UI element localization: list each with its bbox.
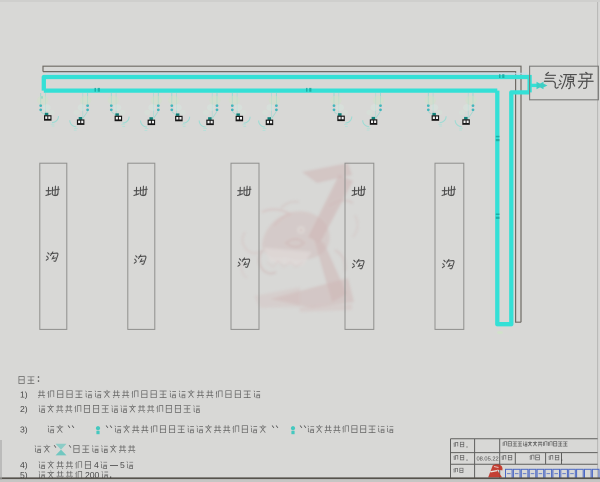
svg-text:5: 5: [120, 460, 125, 470]
svg-text:1): 1): [20, 389, 28, 399]
svg-text:4: 4: [94, 460, 99, 470]
svg-text:2): 2): [20, 404, 28, 414]
svg-text:08.05.22: 08.05.22: [477, 457, 499, 463]
svg-text:4): 4): [20, 460, 28, 470]
svg-text:3): 3): [20, 424, 28, 434]
